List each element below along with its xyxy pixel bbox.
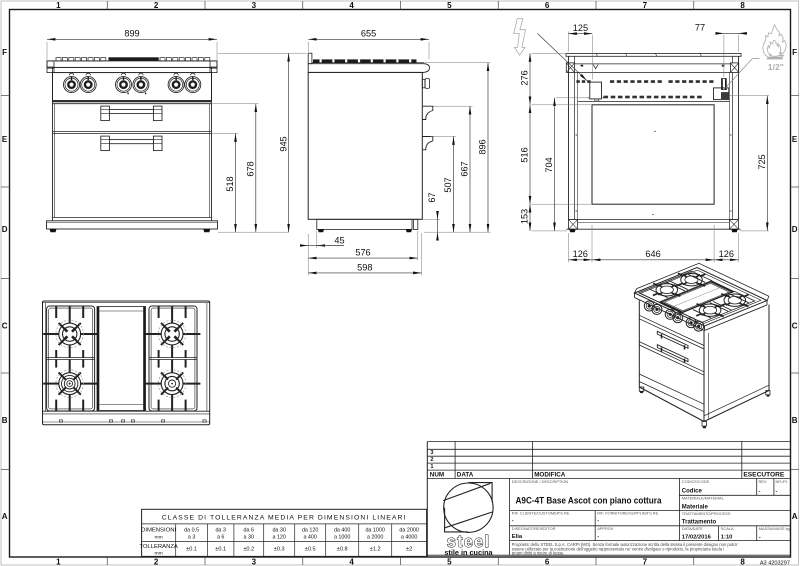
svg-text:ESECUTORE: ESECUTORE xyxy=(743,472,785,479)
svg-text:F: F xyxy=(2,48,7,57)
svg-text:3: 3 xyxy=(252,557,257,566)
svg-text:DATA: DATA xyxy=(457,471,474,478)
svg-text:-: - xyxy=(512,518,514,524)
svg-text:D: D xyxy=(792,225,798,234)
svg-text:Trattamento: Trattamento xyxy=(682,520,717,526)
svg-text:899: 899 xyxy=(124,29,139,39)
svg-text:da 30: da 30 xyxy=(272,527,286,533)
svg-text:A: A xyxy=(792,512,798,521)
svg-text:67: 67 xyxy=(427,192,437,202)
svg-text:8: 8 xyxy=(740,1,745,10)
svg-text:678: 678 xyxy=(246,161,256,176)
svg-text:A9C-4T Base Ascot con piano co: A9C-4T Base Ascot con piano cottura xyxy=(516,495,663,505)
svg-text:da 3: da 3 xyxy=(215,527,226,533)
svg-text:Materiale: Materiale xyxy=(682,504,709,510)
svg-text:Elia: Elia xyxy=(512,534,523,540)
svg-text:646: 646 xyxy=(645,249,660,259)
svg-text:mm: mm xyxy=(155,535,163,540)
svg-text:a 6: a 6 xyxy=(217,534,225,540)
svg-text:a 4000: a 4000 xyxy=(401,534,418,540)
svg-text:E: E xyxy=(792,135,798,144)
svg-text:da 120: da 120 xyxy=(302,527,319,533)
svg-text:6: 6 xyxy=(545,1,550,10)
svg-text:126: 126 xyxy=(719,249,734,259)
svg-text:DESCRIZIONE / DESCRIPTION: DESCRIZIONE / DESCRIPTION xyxy=(512,479,569,484)
svg-text:153: 153 xyxy=(520,209,530,224)
svg-text:Codice: Codice xyxy=(682,488,703,494)
svg-text:507: 507 xyxy=(443,177,453,192)
svg-text:RIF. FORNITORE/SUPPLIER'S RE.: RIF. FORNITORE/SUPPLIER'S RE. xyxy=(597,511,659,516)
svg-text:2: 2 xyxy=(430,457,433,463)
svg-text:±0.2: ±0.2 xyxy=(243,547,254,553)
svg-text:3: 3 xyxy=(430,450,433,456)
svg-text:4: 4 xyxy=(349,1,354,10)
svg-text:mm: mm xyxy=(155,552,163,557)
svg-text:17/02/2016: 17/02/2016 xyxy=(682,534,712,540)
svg-text:8: 8 xyxy=(740,557,745,566)
svg-text:126: 126 xyxy=(573,249,588,259)
svg-text:1: 1 xyxy=(56,1,61,10)
svg-text:1: 1 xyxy=(430,464,433,470)
svg-text:MATERIALE/MATERIAL: MATERIALE/MATERIAL xyxy=(682,496,725,501)
svg-text:TOLLERANZA: TOLLERANZA xyxy=(139,544,178,550)
svg-text:±0.1: ±0.1 xyxy=(215,547,226,553)
svg-text:NUM: NUM xyxy=(430,471,444,478)
svg-text:±1.2: ±1.2 xyxy=(370,547,381,553)
svg-text:2: 2 xyxy=(154,1,159,10)
svg-text:896: 896 xyxy=(478,139,488,154)
svg-text:da 6: da 6 xyxy=(244,527,255,533)
svg-text:A: A xyxy=(2,512,8,521)
svg-text:945: 945 xyxy=(278,136,288,151)
svg-text:5: 5 xyxy=(447,557,452,566)
svg-text:a 30: a 30 xyxy=(244,534,255,540)
svg-text:±0.5: ±0.5 xyxy=(305,547,316,553)
svg-text:stile in cucina: stile in cucina xyxy=(444,548,493,557)
svg-text:±2: ±2 xyxy=(406,547,412,553)
svg-text:6: 6 xyxy=(545,557,550,566)
svg-text:a 2000: a 2000 xyxy=(367,534,384,540)
svg-text:da 2000: da 2000 xyxy=(399,527,419,533)
svg-text:a 120: a 120 xyxy=(272,534,286,540)
svg-text:a 3: a 3 xyxy=(188,534,196,540)
svg-text:D: D xyxy=(2,225,8,234)
svg-text:REV.: REV. xyxy=(759,479,768,484)
svg-text:598: 598 xyxy=(357,262,372,272)
svg-text:da 400: da 400 xyxy=(334,527,351,533)
svg-text:77: 77 xyxy=(695,23,705,33)
svg-text:da 1000: da 1000 xyxy=(365,527,385,533)
svg-text:1:10: 1:10 xyxy=(721,534,733,540)
svg-text:a 400: a 400 xyxy=(303,534,317,540)
svg-text:F: F xyxy=(792,48,797,57)
svg-text:da 0.5: da 0.5 xyxy=(184,527,199,533)
svg-text:7: 7 xyxy=(643,1,648,10)
svg-text:RIF. CLIENTE/CUSTOMER'S RE.: RIF. CLIENTE/CUSTOMER'S RE. xyxy=(512,511,571,516)
svg-text:-: - xyxy=(776,488,778,494)
svg-text:4: 4 xyxy=(349,557,354,566)
svg-text:±0.8: ±0.8 xyxy=(337,547,348,553)
svg-text:APPROV.: APPROV. xyxy=(597,526,614,531)
svg-text:1: 1 xyxy=(56,557,61,566)
svg-text:propri diritti a rigore di leg: propri diritti a rigore di legge. xyxy=(512,550,564,555)
svg-text:655: 655 xyxy=(361,29,376,39)
svg-text:516: 516 xyxy=(520,147,530,162)
svg-text:-: - xyxy=(759,534,761,540)
svg-text:±0.1: ±0.1 xyxy=(186,547,197,553)
svg-text:-: - xyxy=(759,488,761,494)
svg-text:a 1000: a 1000 xyxy=(334,534,351,540)
svg-text:704: 704 xyxy=(544,157,554,172)
svg-text:SCALA: SCALA xyxy=(721,526,734,531)
svg-text:E: E xyxy=(2,135,8,144)
svg-text:-: - xyxy=(597,534,599,540)
svg-text:MODIFICA: MODIFICA xyxy=(534,471,566,478)
svg-text:CODICE/CODE: CODICE/CODE xyxy=(682,479,710,484)
svg-text:C: C xyxy=(792,322,798,331)
svg-text:7: 7 xyxy=(643,557,648,566)
svg-text:MASSA/MASS kg: MASSA/MASS kg xyxy=(759,526,790,531)
svg-text:CLASSE DI TOLLERANZA MEDIA PER: CLASSE DI TOLLERANZA MEDIA PER DIMENSION… xyxy=(162,515,407,522)
svg-text:-: - xyxy=(597,518,599,524)
svg-text:576: 576 xyxy=(355,248,370,258)
svg-text:DATA/DATE: DATA/DATE xyxy=(682,526,703,531)
svg-text:B: B xyxy=(792,416,798,425)
svg-text:518: 518 xyxy=(225,176,235,191)
svg-text:667: 667 xyxy=(460,161,470,176)
svg-text:DIMENSIONI: DIMENSIONI xyxy=(141,527,176,533)
svg-text:DISEGNATORE/EDITOR: DISEGNATORE/EDITOR xyxy=(512,526,556,531)
svg-text:276: 276 xyxy=(520,70,530,85)
svg-text:2: 2 xyxy=(154,557,159,566)
svg-text:125: 125 xyxy=(573,23,588,33)
svg-text:±0.3: ±0.3 xyxy=(274,547,285,553)
svg-text:5: 5 xyxy=(447,1,452,10)
svg-text:TRATTAMENTO/PROCESS: TRATTAMENTO/PROCESS xyxy=(682,511,731,516)
svg-text:45: 45 xyxy=(334,235,344,245)
svg-text:1/2": 1/2" xyxy=(768,62,784,72)
svg-text:3: 3 xyxy=(252,1,257,10)
svg-text:C: C xyxy=(2,322,8,331)
svg-text:NR./PI.: NR./PI. xyxy=(776,479,789,484)
svg-text:725: 725 xyxy=(757,154,767,169)
svg-text:A3 4203297: A3 4203297 xyxy=(760,561,790,566)
svg-text:B: B xyxy=(2,416,8,425)
